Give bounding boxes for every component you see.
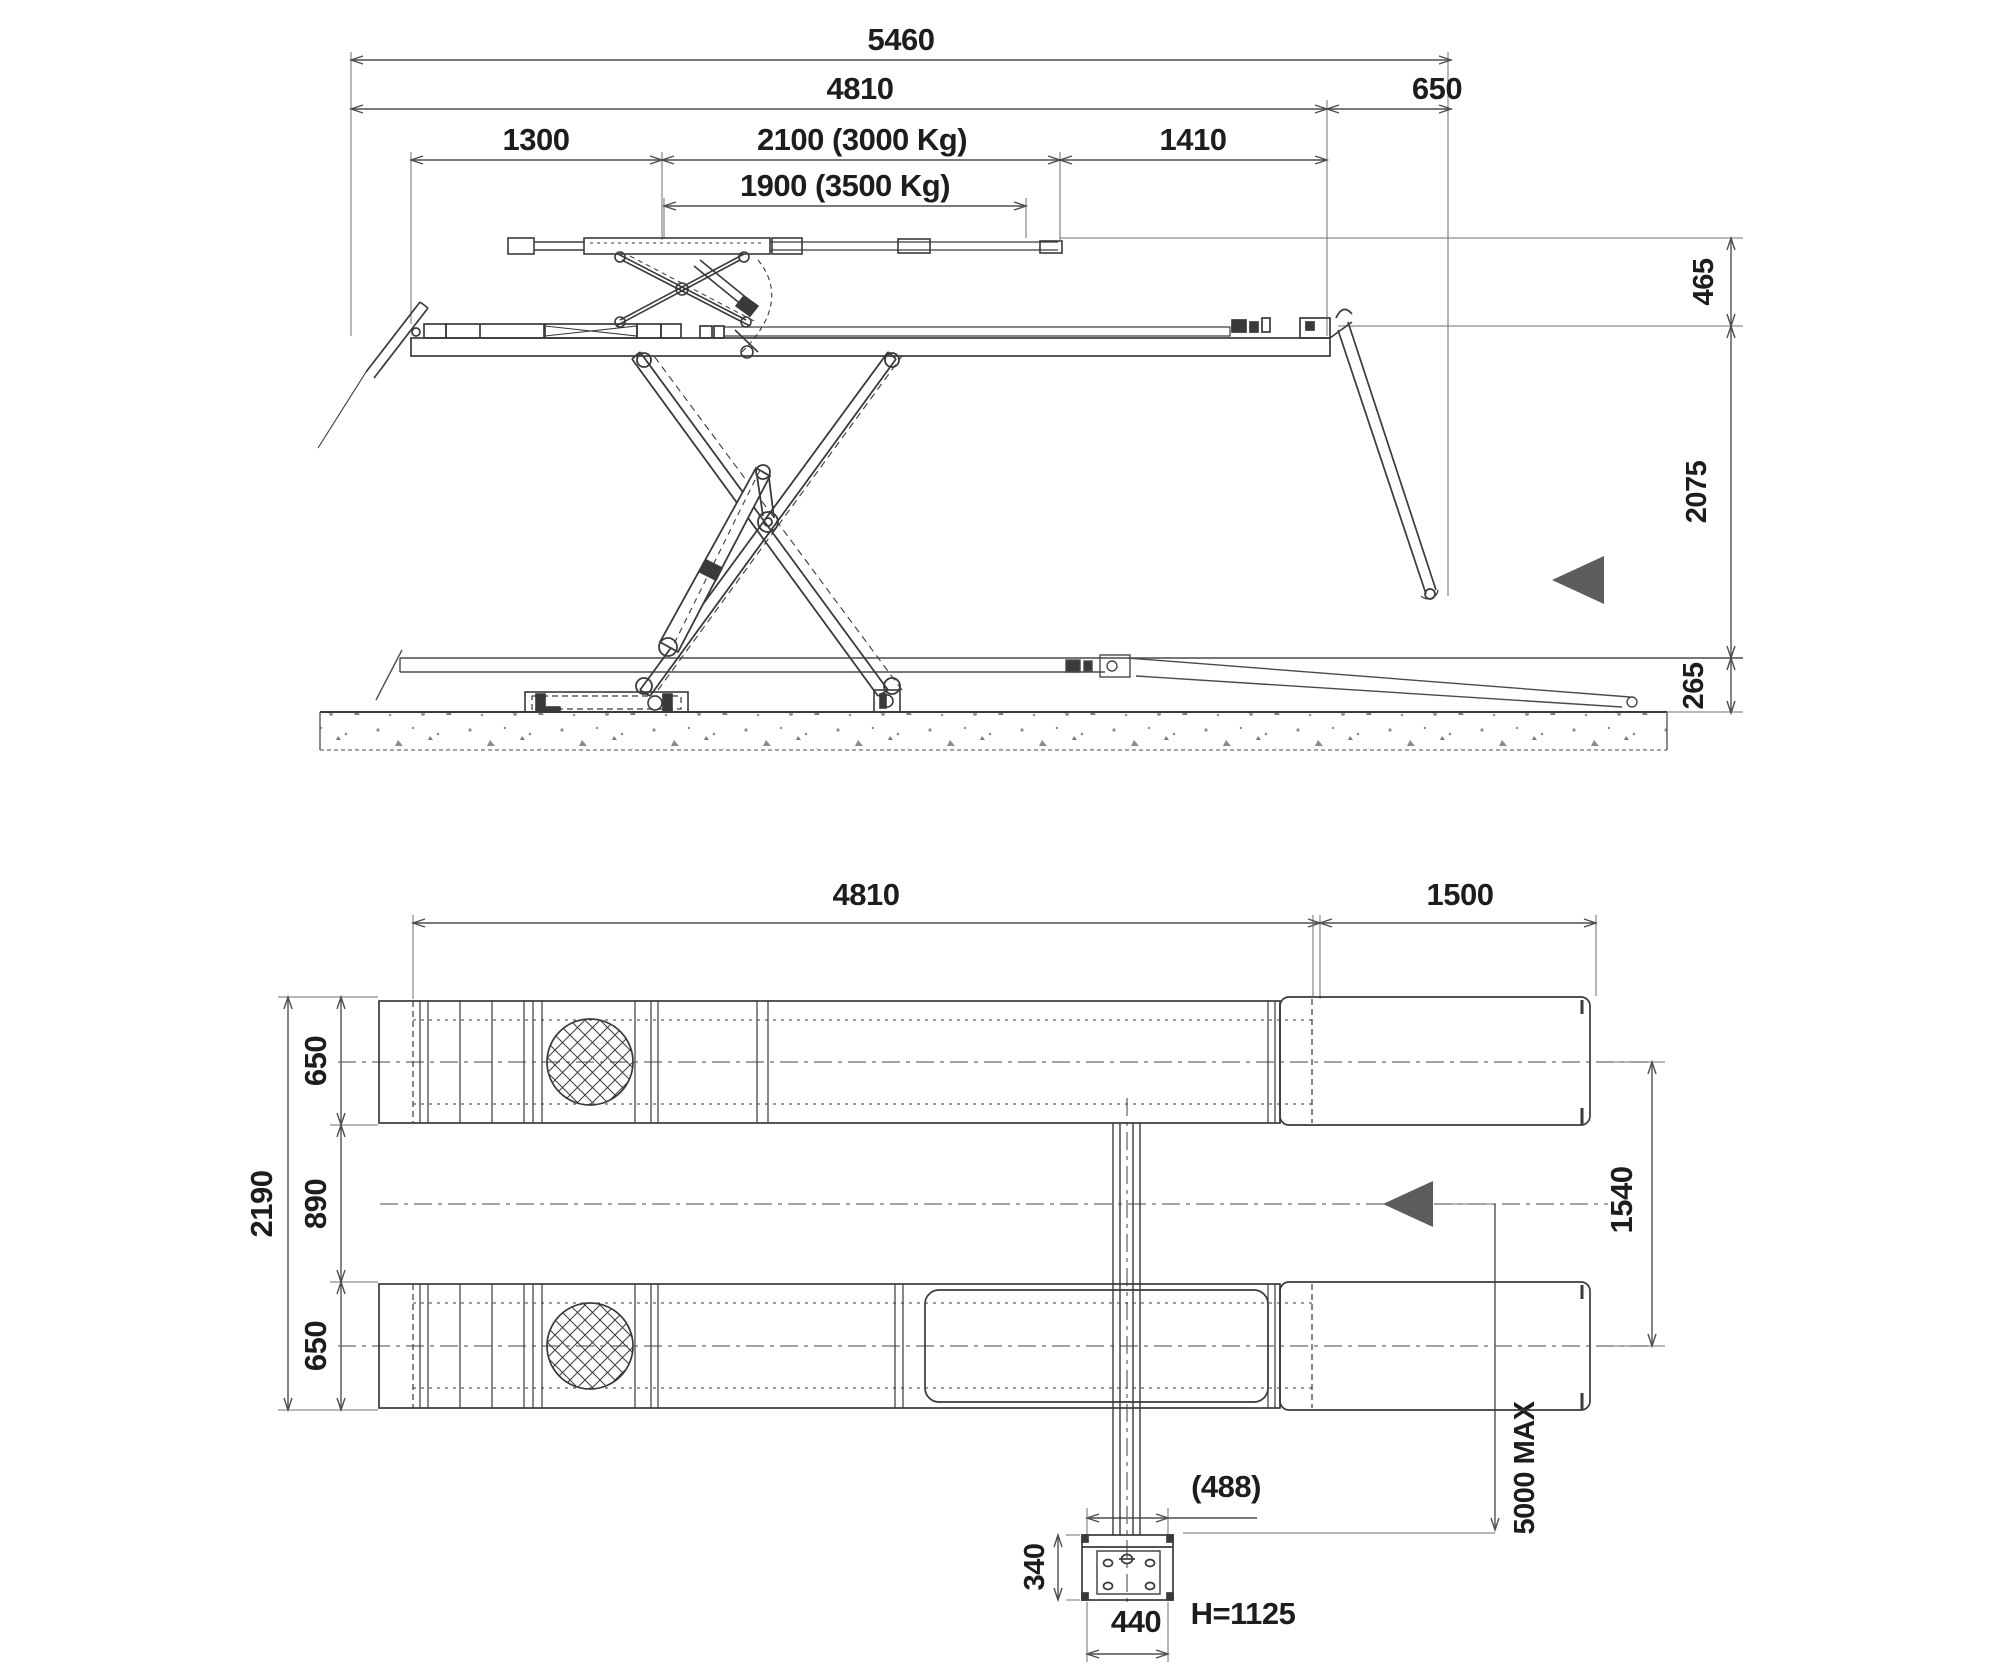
dim-cable-run-max: 5000 MAX <box>1509 1400 1541 1534</box>
dim-console-depth: 340 <box>1019 1544 1051 1591</box>
side-view: 5460 4810 650 1300 2100 (3000 Kg) 1410 1… <box>318 22 1743 750</box>
dim-overall-width: 2190 <box>244 1171 279 1238</box>
dim-runway-width-rear: 650 <box>298 1321 333 1371</box>
dim-plan-platform-length: 4810 <box>833 877 900 912</box>
dim-rear-ramp-length: 650 <box>1412 71 1462 106</box>
scissor-lift-technical-drawing: 5460 4810 650 1300 2100 (3000 Kg) 1410 1… <box>0 0 2000 1678</box>
turn-plate-front <box>547 1019 633 1105</box>
drive-on-ramp-front <box>1280 997 1590 1125</box>
dim-track-centre-distance: 1540 <box>1604 1167 1639 1234</box>
turn-plate-rear <box>547 1303 633 1389</box>
base-frame <box>525 690 900 712</box>
dim-pad-span-3000: 2100 (3000 Kg) <box>757 122 967 157</box>
direction-arrow-icon <box>1383 1181 1433 1227</box>
side-runway <box>318 302 1438 599</box>
direction-arrow-icon <box>1552 556 1604 604</box>
dim-free-lift-height: 465 <box>1688 258 1720 305</box>
dim-runway-gap: 890 <box>298 1179 333 1229</box>
hydraulic-cylinder <box>659 465 774 656</box>
dim-console-width: 440 <box>1111 1604 1161 1639</box>
dim-lowered-height: 265 <box>1678 662 1710 709</box>
plan-view: 4810 1500 2190 650 890 650 1540 5000 MAX… <box>244 877 1665 1662</box>
plan-extension-lines <box>278 915 1665 1662</box>
dim-console-height: H=1125 <box>1191 1596 1296 1631</box>
side-dimension-lines <box>351 60 1731 713</box>
dim-raised-height: 2075 <box>1681 460 1713 523</box>
dim-console-offset: (488) <box>1191 1469 1261 1504</box>
dim-pad-span-3500: 1900 (3500 Kg) <box>740 168 950 203</box>
dim-plan-ramp-length: 1500 <box>1427 877 1494 912</box>
scissor-mechanism <box>632 352 902 696</box>
wheel-free-jack <box>508 238 1062 358</box>
lowered-platform-ghost <box>376 650 1743 707</box>
dim-runway-width-front: 650 <box>298 1036 333 1086</box>
centerlines <box>338 1062 1648 1605</box>
drawing-svg: 5460 4810 650 1300 2100 (3000 Kg) 1410 1… <box>0 0 2000 1678</box>
drop-ramp-raised <box>1330 309 1438 599</box>
plan-runway-front <box>379 997 1590 1125</box>
dim-front-section: 1300 <box>503 122 570 157</box>
dim-total-length: 5460 <box>868 22 935 57</box>
dim-platform-length: 4810 <box>827 71 894 106</box>
dim-rear-section: 1410 <box>1160 122 1227 157</box>
concrete-floor <box>320 712 1667 750</box>
